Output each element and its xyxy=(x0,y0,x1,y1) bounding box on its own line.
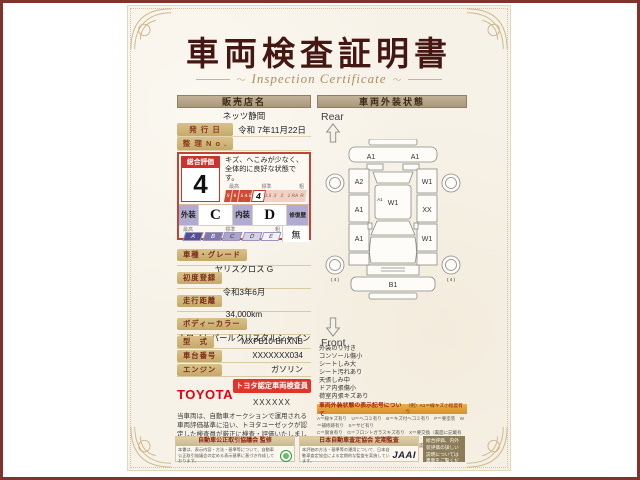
detail-row-model-code: 型 式 MXPB10-BHXNB xyxy=(177,335,311,349)
rating-comment: キズ、へこみが少なく、全体的に良好な状態です。 xyxy=(225,156,306,183)
rating-scale-cell: R xyxy=(298,190,307,202)
detail-label: 初度登録 xyxy=(177,272,222,284)
rear-left-wheel-inner xyxy=(330,178,341,189)
condition-note: シートしみ大 xyxy=(319,361,469,369)
mark-door-upper-left: A1 xyxy=(355,207,364,214)
hood-shape xyxy=(370,237,417,263)
car-exterior-diagram: A1 A1 A2 W1 A1 XX A1 W1 W1 B1 A1 ( 4 ) (… xyxy=(323,139,463,315)
subtitle-ornament: 〜 xyxy=(236,73,245,86)
certificate-paper: 車両検査証明書 〜 Inspection Certificate 〜 販売店名 … xyxy=(127,5,511,471)
fair-trade-council-box: 自動車公正取引協議会 監修 本書は、表示内容・方法・基準等について、自動車公正取… xyxy=(175,436,295,462)
legend-line: A＝線キズ有り U＝ヘコミ有り B＝キズ付ヘコミ有り P＝要塗装 W＝補修跡有り… xyxy=(317,416,467,430)
fair-trade-council-header: 自動車公正取引協議会 監修 xyxy=(176,437,294,446)
dealer-name: ネッツ静岡 xyxy=(177,110,311,122)
fair-trade-council-body: 本書は、表示内容・方法・基準等について、自動車公正取引協議会の定める表示基準に基… xyxy=(176,446,294,465)
exterior-state-header: 車両外装状態 xyxy=(317,95,467,108)
certificate-subtitle: Inspection Certificate xyxy=(251,71,386,87)
overall-rating-section: 総合評価 4 キズ、へこみが少なく、全体的に良好な状態です。 最高 標準 粗 S… xyxy=(177,152,311,240)
jaai-logo: JAAI xyxy=(392,450,416,461)
mark-roof: W1 xyxy=(388,200,399,207)
detail-label: エンジン xyxy=(177,364,222,376)
detail-value: MXPB10-BHXNB xyxy=(241,337,303,346)
condition-note: 外装のり付き xyxy=(319,345,469,353)
front-plate-shape xyxy=(369,293,417,299)
grade-scale-row: 最高 標準 粗 A B C D E 無 xyxy=(179,225,309,242)
front-right-wheel-inner xyxy=(446,260,457,271)
certificate-page: 車両検査証明書 〜 Inspection Certificate 〜 販売店名 … xyxy=(0,0,640,480)
rear-plate-shape xyxy=(369,139,417,145)
front-left-wheel-inner xyxy=(330,260,341,271)
vehicle-details: 車種・グレード ヤリスクロス G 初度登録 令和3年6月 走行距離 34,000… xyxy=(177,243,311,377)
exterior-grade: C xyxy=(199,205,233,225)
detail-label: ボディーカラー xyxy=(177,318,247,330)
dealer-section-header: 販売店名 xyxy=(177,95,311,108)
reference-no-label: 整 理 N o . xyxy=(177,137,233,150)
detail-label: 車台番号 xyxy=(177,350,222,362)
condition-notes: 外装のり付き コンソール傷小 シートしみ大 シート汚れあり 天張しみ中 ドア内張… xyxy=(319,345,469,401)
mark-front-bumper: B1 xyxy=(389,282,398,289)
rating-comment-area: キズ、へこみが少なく、全体的に良好な状態です。 最高 標準 粗 S 6 5 4.… xyxy=(222,154,309,204)
condition-note: コンソール傷小 xyxy=(319,353,469,361)
exterior-interior-row: 外装 C 内装 D 修復歴 xyxy=(179,204,309,225)
scale-caption-best: 最高 xyxy=(229,183,239,190)
detail-label: 走行距離 xyxy=(177,295,222,307)
detail-row-body-color: ボディーカラー ホワイトパールクリスタルシャイン xyxy=(177,312,311,335)
tire-depth-left: ( 4 ) xyxy=(331,277,340,282)
issue-date-row: 発 行 日 令和 7年11月22日 xyxy=(177,123,311,137)
subtitle-ornament-line xyxy=(408,79,442,80)
overall-rating-label: 総合評価 xyxy=(182,157,219,168)
repair-history-value: 無 xyxy=(283,226,309,242)
repair-history-label: 修復歴 xyxy=(287,205,309,225)
rear-window-shape xyxy=(373,172,413,183)
exterior-label: 外装 xyxy=(179,205,199,225)
mark-rear-bumper-left: A1 xyxy=(367,154,376,161)
certificate-title: 車両検査証明書 xyxy=(127,27,511,75)
left-mirror-shape xyxy=(368,223,372,229)
rear-right-wheel-inner xyxy=(446,178,457,189)
detail-value: ガソリン xyxy=(271,364,303,375)
rating-scale-captions: 最高 標準 粗 xyxy=(225,183,306,190)
jaai-body: 本評価の方法・基準等の運用について、日本自動車査定協会による定期的な監査を実施し… xyxy=(300,446,418,465)
see-reverse-note: 総合評価、内外装評価の詳しい説明については裏面をご覧ください。 xyxy=(423,436,465,462)
down-arrow-icon xyxy=(321,317,346,337)
toyota-logo: TOYOTA xyxy=(177,387,233,402)
inspector-id: XXXXXX xyxy=(233,398,311,407)
mark-rear-bumper-right: A1 xyxy=(411,154,420,161)
rear-label: Rear xyxy=(321,111,344,123)
overall-rating-row: 総合評価 4 キズ、へこみが少なく、全体的に良好な状態です。 最高 標準 粗 S… xyxy=(179,154,309,204)
mark-door-lower-left: A1 xyxy=(355,236,364,243)
detail-row-engine: エンジン ガソリン xyxy=(177,363,311,377)
certificate-subtitle-row: 〜 Inspection Certificate 〜 xyxy=(127,71,511,87)
grade-scale-cell: E xyxy=(261,232,282,241)
jaai-header: 日本自動車査定協会 定期監査 xyxy=(300,437,418,446)
windshield-shape xyxy=(371,221,415,235)
toyota-inspector-block: TOYOTA トヨタ認定車両検査員 XXXXXX xyxy=(177,379,311,409)
grade-scale-cell: B xyxy=(202,232,223,241)
fair-trade-council-text: 本書は、表示内容・方法・基準等について、自動車公正取引協議会の定める表示基準に基… xyxy=(178,447,278,464)
scale-caption-poor: 粗 xyxy=(299,183,304,190)
front-fascia-shape xyxy=(367,265,419,275)
overall-rating-box: 総合評価 4 xyxy=(181,156,220,202)
mark-rear-quarter-left: A2 xyxy=(355,179,364,186)
subtitle-ornament: 〜 xyxy=(393,73,402,86)
mark-pillar: A1 xyxy=(377,197,383,202)
detail-row-chassis-no: 車台番号 XXXXXXX034 xyxy=(177,349,311,363)
mark-rear-quarter-right: W1 xyxy=(422,179,433,186)
left-rocker-shape xyxy=(349,253,369,265)
jaai-text: 本評価の方法・基準等の運用について、日本自動車査定協会による定期的な監査を実施し… xyxy=(302,447,390,464)
grade-scale-cell: C xyxy=(222,232,243,241)
inspector-box: トヨタ認定車両検査員 XXXXXX xyxy=(233,379,311,409)
inspector-title: トヨタ認定車両検査員 xyxy=(233,379,311,393)
grade-scale-cell: D xyxy=(241,232,262,241)
corner-ornament-icon xyxy=(465,425,509,469)
interior-label: 内装 xyxy=(233,205,253,225)
tire-depth-right: ( 4 ) xyxy=(447,277,456,282)
reference-no-row: 整 理 N o . xyxy=(177,137,311,151)
issue-date-label: 発 行 日 xyxy=(177,123,233,136)
scale-caption-standard: 標準 xyxy=(261,183,271,190)
detail-value: XXXXXXX034 xyxy=(252,351,303,360)
fair-trade-council-logo-icon xyxy=(280,450,292,462)
issue-date-value: 令和 7年11月22日 xyxy=(233,124,311,136)
legend-example: （例）A1＝線キズ小程度有り xyxy=(406,403,465,415)
detail-label: 型 式 xyxy=(177,336,214,348)
interior-grade: D xyxy=(253,205,287,225)
overall-rating-value: 4 xyxy=(182,168,219,201)
detail-label: 車種・グレード xyxy=(177,249,247,261)
detail-row-model: 車種・グレード ヤリスクロス G xyxy=(177,243,311,266)
rating-scale: S 6 5 4.5 4 3.5 3 2 1 RA R xyxy=(225,190,306,202)
rear-bumper-shape xyxy=(349,147,437,162)
legend-header-bar: 車両外装状態の表示記号について （例）A1＝線キズ小程度有り xyxy=(317,404,467,414)
mark-door-lower-right: W1 xyxy=(422,236,433,243)
grade-scale-cells: A B C D E xyxy=(184,232,282,241)
right-mirror-shape xyxy=(414,223,418,229)
grade-scale-cell: A xyxy=(183,232,204,241)
corner-ornament-icon xyxy=(129,425,173,469)
grade-scale: 最高 標準 粗 A B C D E xyxy=(179,226,283,242)
subtitle-ornament-line xyxy=(196,79,230,80)
mark-door-upper-right: XX xyxy=(422,207,432,214)
jaai-box: 日本自動車査定協会 定期監査 本評価の方法・基準等の運用について、日本自動車査定… xyxy=(299,436,419,462)
right-rocker-shape xyxy=(417,253,437,265)
